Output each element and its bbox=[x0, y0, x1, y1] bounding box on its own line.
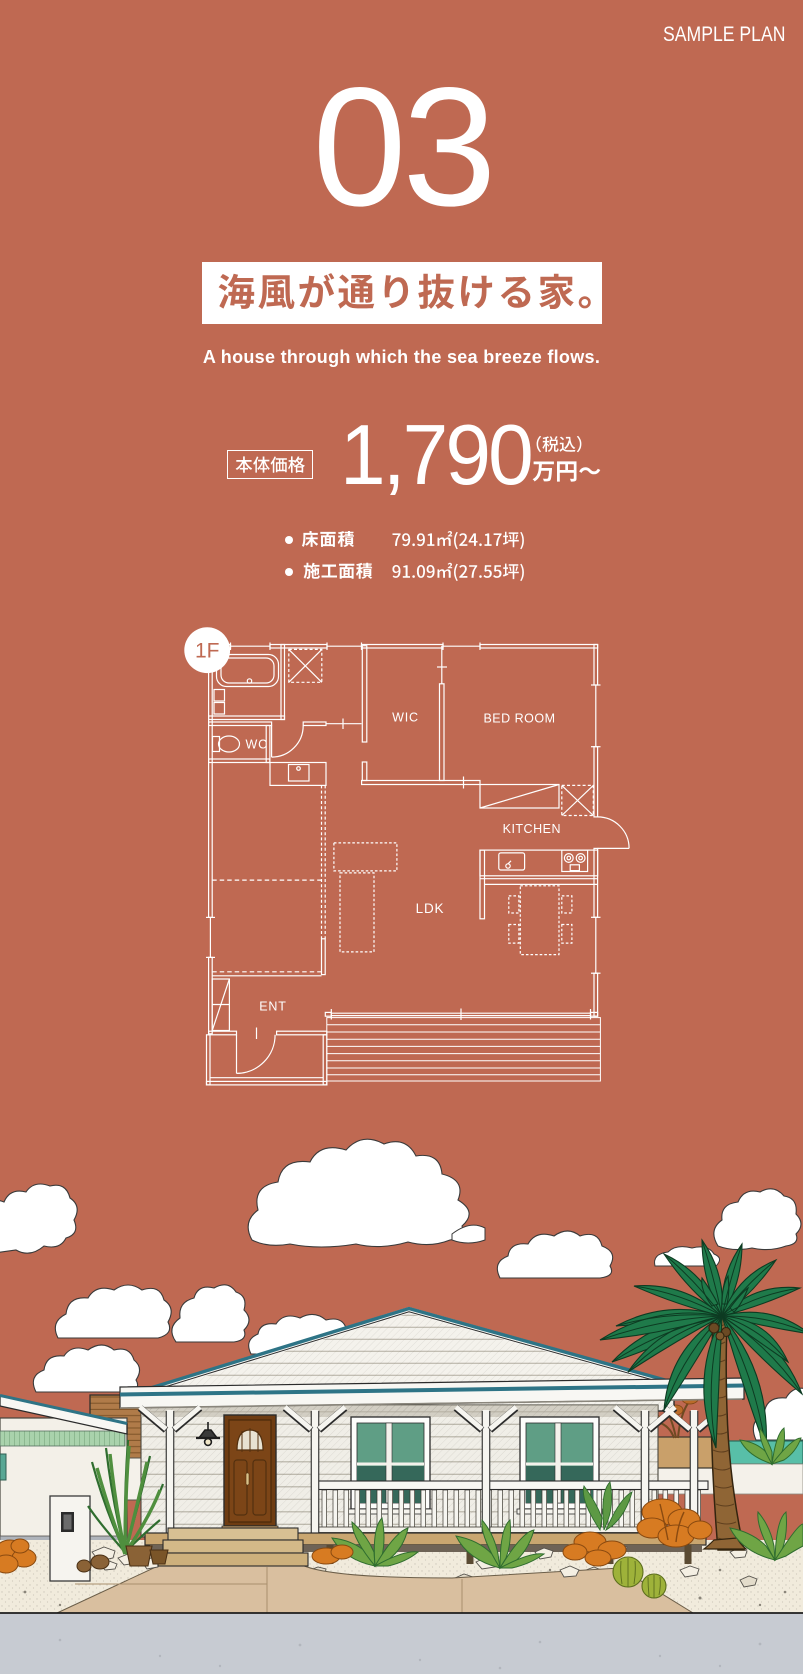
svg-text:WC: WC bbox=[245, 738, 267, 752]
svg-text:KITCHEN: KITCHEN bbox=[503, 822, 561, 836]
svg-text:WIC: WIC bbox=[392, 711, 419, 725]
svg-text:BED ROOM: BED ROOM bbox=[483, 712, 555, 726]
svg-text:LDK: LDK bbox=[416, 901, 445, 916]
svg-text:1F: 1F bbox=[195, 640, 220, 663]
svg-text:ENT: ENT bbox=[259, 1000, 286, 1014]
